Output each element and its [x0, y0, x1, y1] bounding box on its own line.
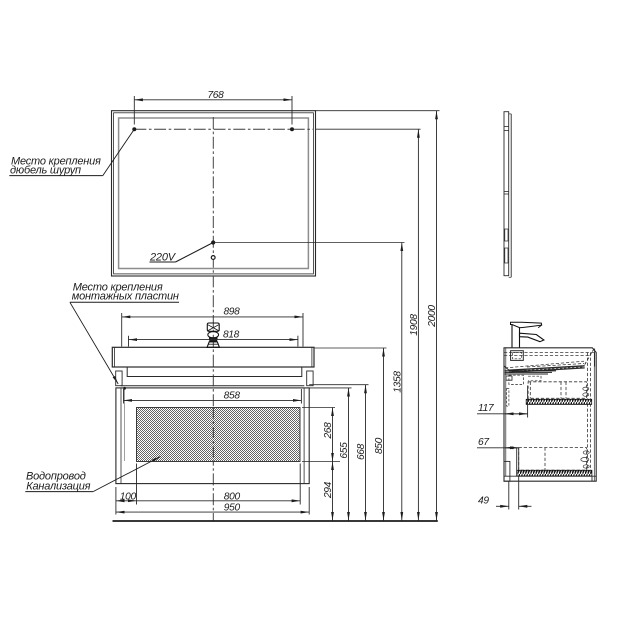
svg-text:800: 800: [224, 491, 241, 502]
svg-text:655: 655: [339, 442, 350, 459]
svg-text:117: 117: [478, 403, 494, 414]
svg-text:220V: 220V: [149, 251, 177, 263]
svg-text:858: 858: [224, 390, 241, 401]
svg-text:100: 100: [120, 491, 137, 502]
svg-text:268: 268: [323, 422, 334, 440]
svg-text:668: 668: [356, 443, 367, 460]
svg-text:768: 768: [207, 90, 224, 101]
svg-text:950: 950: [224, 502, 241, 513]
svg-text:1358: 1358: [393, 371, 404, 393]
svg-text:1908: 1908: [409, 314, 420, 336]
svg-text:67: 67: [478, 437, 489, 448]
svg-text:294: 294: [323, 481, 334, 499]
svg-text:дюбель шуруп: дюбель шуруп: [10, 164, 81, 176]
svg-text:818: 818: [223, 330, 240, 341]
svg-text:2000: 2000: [427, 305, 438, 328]
svg-text:850: 850: [374, 437, 385, 454]
svg-text:49: 49: [478, 496, 489, 507]
svg-text:монтажных пластин: монтажных пластин: [72, 291, 179, 303]
svg-text:898: 898: [223, 306, 240, 317]
svg-text:Канализация: Канализация: [26, 481, 90, 493]
